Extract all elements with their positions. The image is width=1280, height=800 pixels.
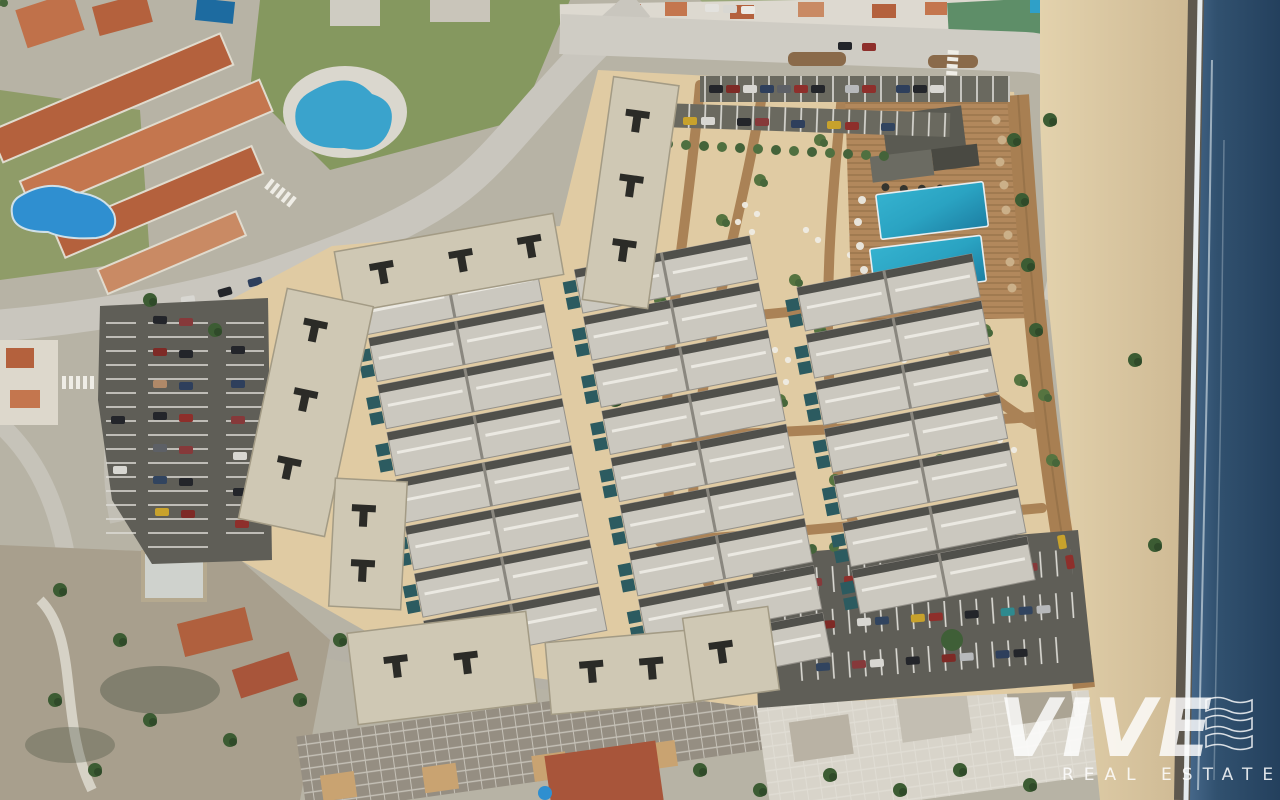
small-pool-south (538, 786, 552, 800)
aerial-photo: VIVE REAL ESTATE (0, 0, 1280, 800)
aerial-render-canvas: VIVE REAL ESTATE (0, 0, 1280, 800)
parking-tree (941, 629, 963, 651)
villas-left-edge (0, 340, 58, 425)
slab-midwest (329, 478, 408, 610)
slab-south-2 (545, 630, 701, 715)
watermark-tagline-text: REAL ESTATE (1062, 765, 1280, 785)
watermark-brand-text: VIVE (998, 682, 1214, 775)
west-parking-lot (98, 293, 272, 564)
slab-south-3 (683, 606, 780, 701)
